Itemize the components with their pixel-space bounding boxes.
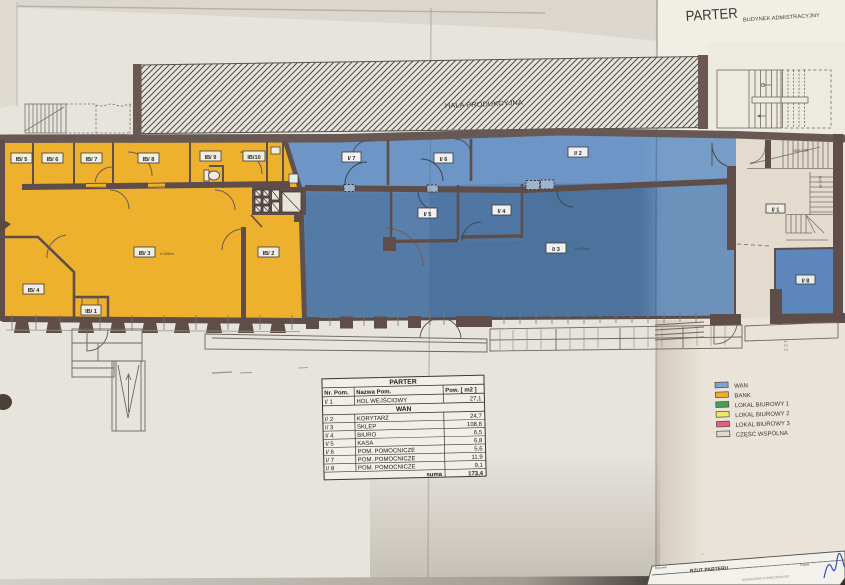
svg-text:BANK: BANK [734, 393, 751, 400]
svg-text:IB/ 5: IB/ 5 [16, 157, 28, 163]
svg-text:I/ 5: I/ 5 [325, 442, 334, 448]
svg-text:IB/ 4: IB/ 4 [28, 288, 41, 294]
svg-text:I/ 4: I/ 4 [498, 209, 507, 215]
svg-text:I/ 6: I/ 6 [326, 450, 335, 456]
svg-text:SKLEP: SKLEP [357, 424, 376, 430]
svg-text:KORYTARZ: KORYTARZ [357, 416, 390, 423]
svg-text:11,9: 11,9 [471, 455, 483, 461]
svg-text:PARTER: PARTER [389, 379, 417, 387]
svg-text:IB/ 6: IB/ 6 [47, 157, 59, 163]
svg-text:- 1 -: - 1 - [700, 552, 706, 556]
svg-text:I/ 7: I/ 7 [326, 458, 335, 464]
svg-text:5,6: 5,6 [474, 446, 483, 452]
svg-text:1 2 3: 1 2 3 [782, 340, 788, 352]
svg-text:I/ 3: I/ 3 [325, 425, 334, 431]
svg-text:Podpis:: Podpis: [800, 562, 810, 567]
svg-text:I/ 2: I/ 2 [574, 151, 582, 157]
svg-text:suma: suma [426, 472, 442, 478]
svg-text:8x17,30: 8x17,30 [818, 176, 822, 188]
svg-text:I/ 3: I/ 3 [552, 247, 560, 253]
svg-text:Nazwa Pom.: Nazwa Pom. [356, 389, 391, 396]
svg-text:WAN: WAN [734, 383, 748, 389]
svg-text:I/ 6: I/ 6 [440, 157, 448, 163]
svg-text:Pow. [ m2 ]: Pow. [ m2 ] [445, 387, 477, 394]
svg-text:I/ 8: I/ 8 [326, 466, 335, 472]
svg-text:18x17,30: 18x17,30 [793, 148, 808, 153]
svg-text:I/ 8: I/ 8 [802, 279, 810, 285]
svg-text:PARTER: PARTER [685, 6, 738, 25]
svg-text:6,8: 6,8 [474, 438, 483, 444]
svg-text:IB/ 1: IB/ 1 [85, 309, 97, 315]
svg-text:173,4: 173,4 [468, 471, 484, 477]
svg-text:KASA: KASA [357, 441, 373, 447]
svg-text:I/ 1: I/ 1 [772, 208, 780, 214]
svg-text:I/ 4: I/ 4 [325, 433, 334, 439]
svg-text:IB/ 9: IB/ 9 [205, 155, 217, 161]
svg-text:h=305cm: h=305cm [160, 252, 174, 256]
svg-text:I/ 1: I/ 1 [324, 400, 333, 406]
svg-text:IB/ 8: IB/ 8 [143, 157, 155, 163]
svg-text:IB/ 2: IB/ 2 [263, 251, 275, 257]
svg-text:IB/10: IB/10 [247, 155, 260, 161]
svg-text:6,5: 6,5 [474, 430, 483, 436]
svg-text:BIURO: BIURO [357, 432, 376, 438]
svg-text:108,8: 108,8 [467, 422, 483, 428]
svg-text:27,1: 27,1 [470, 396, 482, 402]
svg-text:IB/ 7: IB/ 7 [86, 157, 98, 163]
svg-text:24,7: 24,7 [470, 414, 482, 420]
svg-text:I/ 2: I/ 2 [325, 417, 334, 423]
svg-text:Nr. Pom.: Nr. Pom. [324, 390, 349, 397]
svg-text:9,1: 9,1 [475, 463, 484, 469]
svg-text:WAN: WAN [396, 406, 412, 413]
svg-text:I/ 7: I/ 7 [348, 156, 356, 162]
svg-text:IB/ 3: IB/ 3 [139, 251, 151, 257]
svg-text:h=300cm: h=300cm [575, 247, 589, 251]
